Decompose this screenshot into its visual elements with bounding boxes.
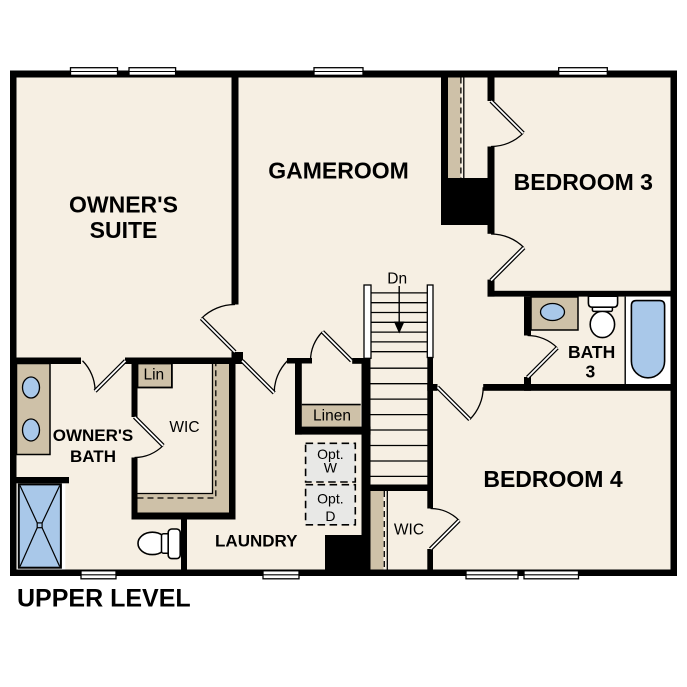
svg-text:3: 3	[586, 362, 596, 382]
svg-text:UPPER LEVEL: UPPER LEVEL	[17, 585, 191, 613]
svg-text:Lin: Lin	[143, 367, 164, 384]
svg-text:BEDROOM 4: BEDROOM 4	[483, 466, 623, 492]
svg-text:D: D	[325, 508, 335, 524]
svg-text:BATH: BATH	[568, 342, 615, 362]
svg-text:WIC: WIC	[394, 521, 424, 538]
svg-text:Dn: Dn	[387, 270, 407, 287]
svg-text:WIC: WIC	[169, 419, 199, 436]
svg-text:LAUNDRY: LAUNDRY	[215, 532, 298, 551]
svg-text:BEDROOM 3: BEDROOM 3	[514, 169, 653, 195]
svg-text:OWNER'S: OWNER'S	[53, 426, 134, 445]
svg-text:OWNER'S: OWNER'S	[69, 191, 178, 217]
svg-text:W: W	[324, 459, 338, 475]
svg-text:BATH: BATH	[70, 447, 116, 466]
svg-text:Linen: Linen	[313, 408, 351, 425]
svg-text:SUITE: SUITE	[90, 217, 158, 243]
svg-text:Opt.: Opt.	[317, 490, 343, 506]
svg-text:GAMEROOM: GAMEROOM	[268, 157, 409, 183]
